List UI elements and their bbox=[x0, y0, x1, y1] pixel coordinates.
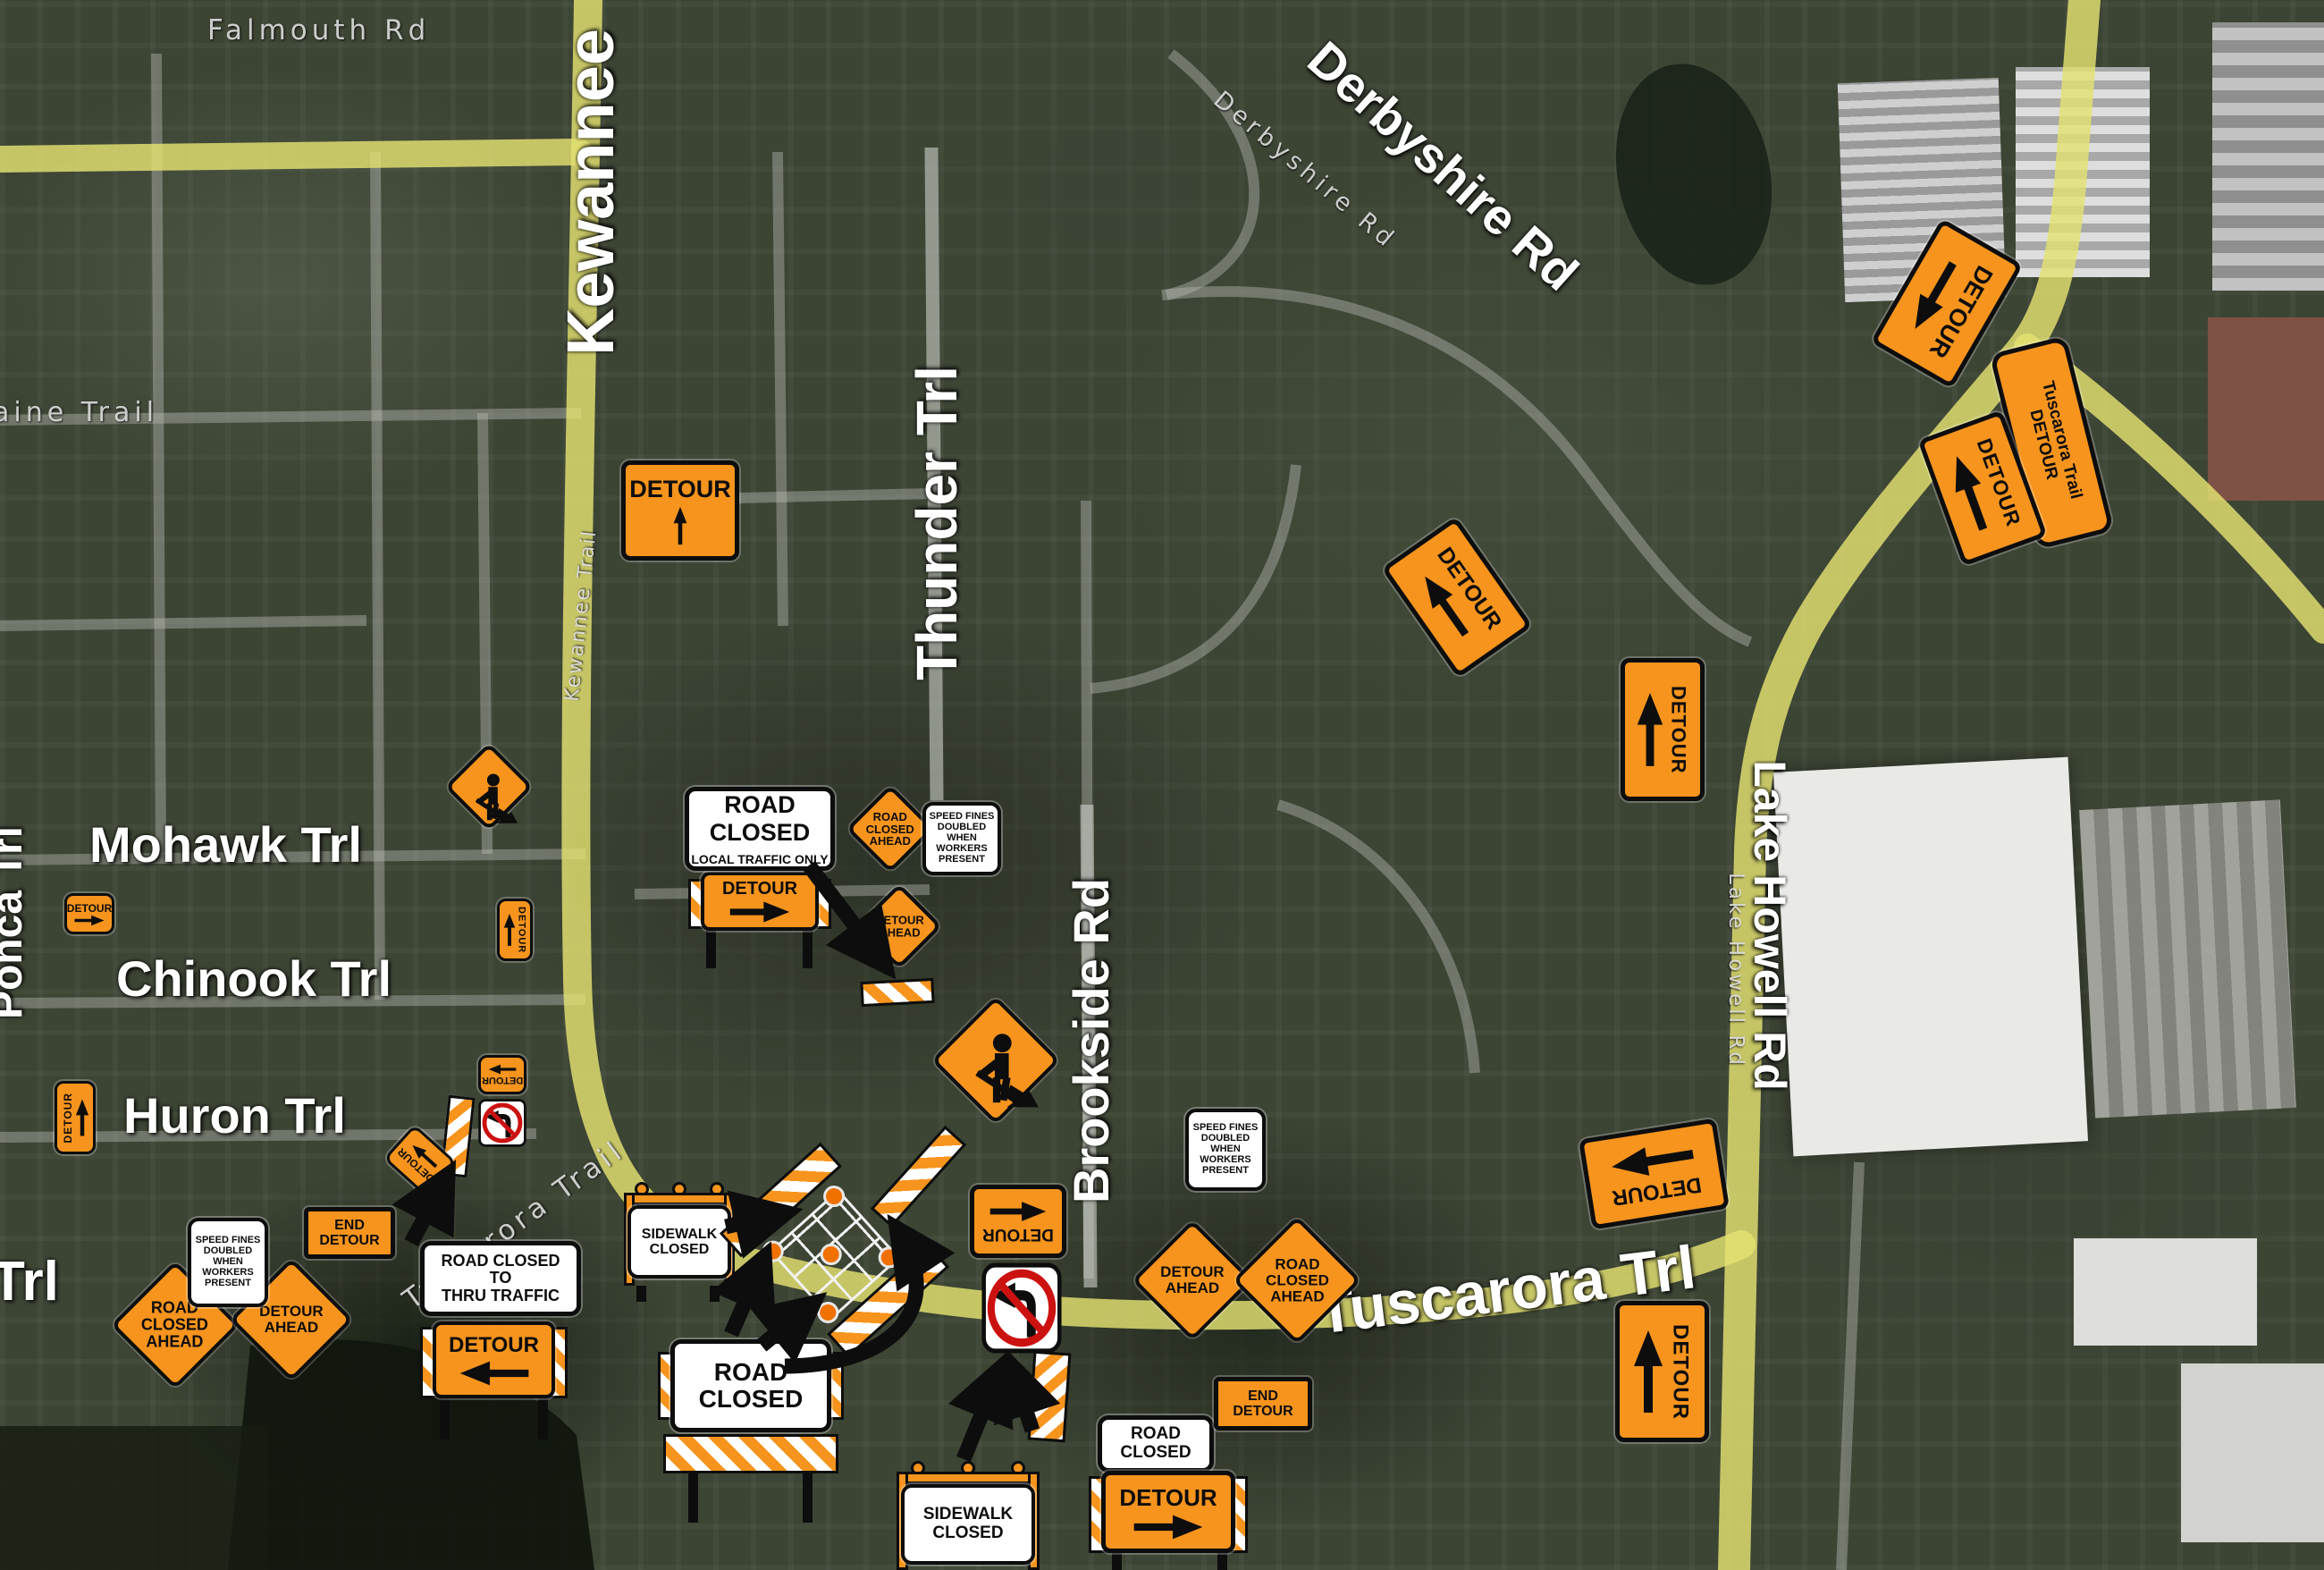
building bbox=[2074, 1238, 2257, 1346]
road-label-kewannee: Kewannee bbox=[554, 0, 626, 393]
end-detour-sign-west: END DETOUR bbox=[304, 1207, 395, 1259]
speed-fines-text: SPEED FINES DOUBLED WHEN WORKERS PRESENT bbox=[191, 1236, 265, 1288]
arrow-up-icon bbox=[75, 1092, 89, 1144]
detour-label: DETOUR bbox=[482, 1075, 523, 1085]
road-closed-barricade-main: ROAD CLOSED bbox=[663, 1339, 838, 1523]
barricade-leg bbox=[538, 1398, 548, 1439]
no-left-turn-icon bbox=[478, 1098, 526, 1148]
end-detour-text: END DETOUR bbox=[319, 1218, 379, 1249]
worker-sign-brookside bbox=[931, 996, 1060, 1125]
detour-barricade-mid: DETOUR bbox=[688, 872, 831, 972]
road-label-ponca: Ponca Trl bbox=[0, 806, 36, 1039]
end-detour-text: END DETOUR bbox=[1233, 1389, 1293, 1420]
parking-lot bbox=[2079, 799, 2296, 1118]
building bbox=[2212, 22, 2324, 291]
small-detour-sign-mohawk: DETOUR bbox=[64, 893, 114, 934]
building bbox=[2208, 317, 2324, 501]
speed-fines-sign-mid: SPEED FINES DOUBLED WHEN WORKERS PRESENT bbox=[922, 802, 1001, 875]
road-label-brookside: Brookside Rd bbox=[1058, 840, 1123, 1242]
road-closed-local-traffic-sign: ROAD CLOSED LOCAL TRAFFIC ONLY bbox=[685, 787, 835, 871]
road-closed-ahead-text: ROAD CLOSED AHEAD bbox=[1266, 1256, 1329, 1304]
detour-label: DETOUR bbox=[1119, 1484, 1217, 1512]
arrow-up-icon bbox=[1636, 677, 1664, 782]
worker-icon bbox=[949, 1014, 1042, 1107]
detour-ahead-text: DETOUR AHEAD bbox=[875, 914, 924, 938]
road-label-lake-howell: Lake Howell Rd bbox=[1740, 702, 1799, 1149]
worker-sign-kewannee bbox=[445, 743, 534, 831]
road-closed-text: ROAD CLOSED bbox=[699, 1359, 804, 1413]
grid-dot bbox=[816, 1239, 846, 1270]
no-left-turn-icon bbox=[981, 1262, 1062, 1354]
barricade-leg bbox=[636, 1286, 646, 1302]
barricade-leg bbox=[1217, 1553, 1227, 1570]
arrow-right-icon bbox=[988, 1200, 1048, 1223]
road-closed-text: ROAD CLOSED bbox=[1120, 1425, 1191, 1462]
road-closed-sign-east: ROAD CLOSED bbox=[1098, 1415, 1214, 1473]
detour-label: DETOUR bbox=[982, 1224, 1054, 1244]
detour-sign: DETOUR bbox=[433, 1321, 555, 1398]
barricade-leg bbox=[710, 1286, 720, 1302]
arrow-up-icon bbox=[503, 908, 516, 951]
detour-map: Falmouth Rd aine Trail Derbyshire Rd Tus… bbox=[0, 0, 2324, 1570]
detour-label: DETOUR bbox=[1668, 1324, 1693, 1420]
small-detour-sign-chinook: DETOUR bbox=[497, 899, 533, 961]
small-detour-sign-flipped: DETOUR bbox=[478, 1055, 526, 1094]
barricade-board bbox=[663, 1434, 838, 1473]
detour-sign-kewannee: DETOUR bbox=[621, 460, 739, 561]
road-label-huron: Huron Trl bbox=[123, 1086, 346, 1144]
barricade-leg bbox=[706, 929, 716, 968]
detour-label: DETOUR bbox=[629, 476, 731, 503]
arrow-right-icon bbox=[726, 900, 794, 924]
local-traffic-label: LOCAL TRAFFIC ONLY bbox=[691, 852, 828, 866]
detour-sign: DETOUR bbox=[701, 872, 819, 931]
detour-ahead-text: DETOUR AHEAD bbox=[259, 1304, 323, 1336]
road-closed-sign: ROAD CLOSED bbox=[670, 1339, 831, 1432]
detour-barricade-south: DETOUR bbox=[1092, 1471, 1244, 1570]
road-label-falmouth: Falmouth Rd bbox=[207, 14, 430, 46]
no-left-turn-sign-small bbox=[478, 1098, 526, 1148]
small-detour-sign-huron-left: DETOUR bbox=[55, 1081, 96, 1154]
detour-barricade-west: DETOUR bbox=[420, 1321, 568, 1442]
barricade-leg bbox=[803, 929, 813, 968]
building bbox=[1773, 757, 2088, 1157]
road-label-mohawk: Mohawk Trl bbox=[89, 815, 362, 874]
road-label-trl-partial: Trl bbox=[0, 1250, 59, 1313]
grid-dot bbox=[758, 1237, 788, 1267]
end-detour-sign-east: END DETOUR bbox=[1214, 1377, 1312, 1431]
building bbox=[2016, 67, 2150, 277]
arrow-up-icon bbox=[662, 505, 698, 546]
detour-label: DETOUR bbox=[517, 907, 527, 953]
arrow-right-icon bbox=[73, 915, 105, 926]
detour-sign-lake-howell-south: DETOUR bbox=[1615, 1301, 1709, 1442]
grid-dot bbox=[819, 1181, 849, 1211]
small-barricade-thunder bbox=[860, 978, 934, 1007]
hatched-barricade-brookside bbox=[1028, 1351, 1072, 1443]
barricade-rail bbox=[624, 1193, 735, 1205]
speed-fines-text: SPEED FINES DOUBLED WHEN WORKERS PRESENT bbox=[1189, 1123, 1262, 1176]
detour-label: DETOUR bbox=[449, 1333, 539, 1358]
building bbox=[2181, 1363, 2324, 1542]
barricade-leg bbox=[803, 1473, 813, 1523]
detour-label: DETOUR bbox=[1667, 686, 1690, 774]
barricade-rail bbox=[897, 1472, 1040, 1484]
detour-sign: DETOUR bbox=[1101, 1471, 1235, 1553]
sidewalk-closed-text: SIDEWALK CLOSED bbox=[923, 1506, 1013, 1542]
buildings-layer bbox=[0, 0, 2324, 1570]
road-label-thunder: Thunder Trl bbox=[901, 255, 973, 791]
sidewalk-closed-barricade-1: SIDEWALK CLOSED bbox=[624, 1189, 735, 1302]
detour-sign-flipped-brookside: DETOUR bbox=[970, 1185, 1066, 1258]
barricade-leg bbox=[440, 1398, 450, 1439]
arrow-right-icon bbox=[1125, 1514, 1211, 1540]
detour-sign-lake-howell-north: DETOUR bbox=[1621, 658, 1705, 801]
road-closed-label: ROAD CLOSED bbox=[689, 791, 830, 847]
road-closed-ahead-text: ROAD CLOSED AHEAD bbox=[141, 1300, 208, 1351]
detour-label: DETOUR bbox=[722, 879, 797, 899]
barricade-leg bbox=[1112, 1553, 1122, 1570]
sidewalk-closed-sign: SIDEWALK CLOSED bbox=[901, 1484, 1035, 1565]
speed-fines-sign-brookside: SPEED FINES DOUBLED WHEN WORKERS PRESENT bbox=[1185, 1109, 1266, 1191]
sidewalk-closed-barricade-2: SIDEWALK CLOSED bbox=[897, 1468, 1040, 1570]
arrow-up-icon bbox=[1632, 1320, 1664, 1423]
barricade-leg bbox=[688, 1473, 698, 1523]
speed-fines-text: SPEED FINES DOUBLED WHEN WORKERS PRESENT bbox=[926, 812, 998, 865]
arrow-left-icon bbox=[487, 1064, 518, 1075]
arrow-left-icon bbox=[456, 1360, 533, 1387]
no-left-turn-sign-brookside bbox=[981, 1262, 1062, 1354]
road-label-chinook: Chinook Trl bbox=[116, 950, 392, 1008]
worker-icon bbox=[458, 755, 520, 818]
road-closed-thru-traffic-sign: ROAD CLOSED TO THRU TRAFFIC bbox=[420, 1241, 581, 1316]
road-closed-thru-text: ROAD CLOSED TO THRU TRAFFIC bbox=[441, 1253, 560, 1304]
detour-ahead-text: DETOUR AHEAD bbox=[1160, 1264, 1224, 1296]
sidewalk-closed-sign: SIDEWALK CLOSED bbox=[627, 1205, 731, 1279]
sidewalk-closed-text: SIDEWALK CLOSED bbox=[642, 1227, 717, 1258]
road-closed-ahead-text: ROAD CLOSED AHEAD bbox=[866, 811, 914, 848]
road-label-aine-trail: aine Trail bbox=[0, 397, 158, 428]
detour-label: DETOUR bbox=[62, 1093, 74, 1143]
detour-label: DETOUR bbox=[67, 902, 112, 915]
speed-fines-sign-west: SPEED FINES DOUBLED WHEN WORKERS PRESENT bbox=[188, 1218, 268, 1307]
